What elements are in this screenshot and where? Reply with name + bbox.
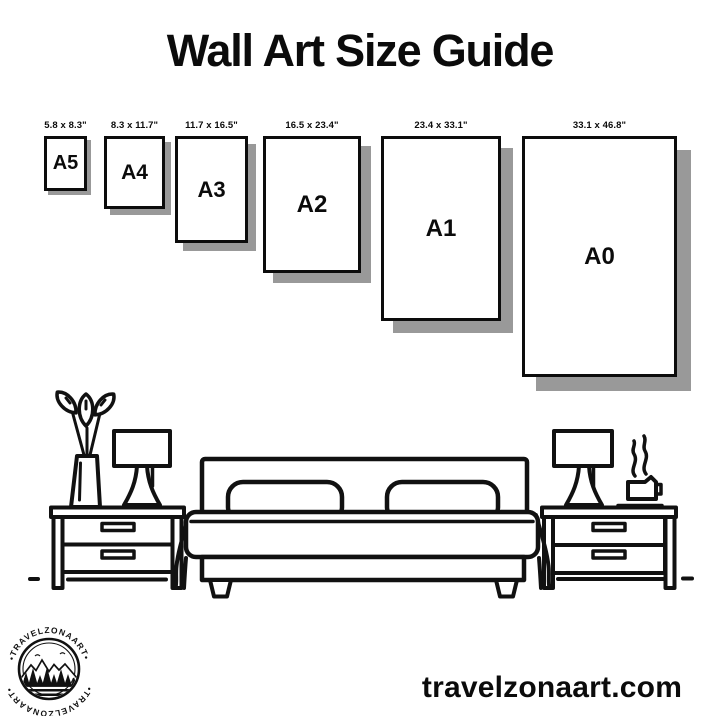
size-item-a4: 8.3 x 11.7" A4 [104,136,165,209]
size-item-a5: 5.8 x 8.3" A5 [44,136,87,191]
size-code: A4 [121,161,148,185]
paper-a3: A3 [175,136,248,243]
vase-plant-icon [53,388,118,507]
table-lamp-icon [114,431,170,505]
size-dimensions-label: 16.5 x 23.4" [285,120,338,131]
poster: Wall Art Size Guide 5.8 x 8.3" A5 8.3 x … [0,0,720,720]
nightstand-icon [51,508,184,589]
size-dimensions-label: 5.8 x 8.3" [44,120,86,131]
table-lamp-icon [554,431,612,505]
size-code: A2 [297,191,328,219]
size-item-a2: 16.5 x 23.4" A2 [263,136,361,273]
paper-a5: A5 [44,136,87,191]
size-dimensions-label: 33.1 x 46.8" [573,120,626,131]
size-code: A0 [584,243,615,271]
size-item-a3: 11.7 x 16.5" A3 [175,136,248,243]
bed-icon [176,459,550,597]
size-code: A3 [197,177,225,203]
size-dimensions-label: 23.4 x 33.1" [414,120,467,131]
website-url: travelzonaart.com [402,671,702,705]
nightstand-icon [542,508,676,589]
size-item-a0: 33.1 x 46.8" A0 [522,136,677,377]
paper-a0: A0 [522,136,677,377]
bedroom-illustration [25,378,705,600]
size-code: A5 [53,152,79,175]
page-title: Wall Art Size Guide [0,28,720,73]
coffee-cup-icon [618,436,662,506]
paper-a1: A1 [381,136,501,321]
paper-a2: A2 [263,136,361,273]
size-item-a1: 23.4 x 33.1" A1 [381,136,501,321]
size-code: A1 [426,215,457,243]
size-dimensions-label: 11.7 x 16.5" [185,120,238,131]
brand-logo-badge: •TRAVELZONAART• •TRAVELZONAART• [2,622,96,716]
size-dimensions-label: 8.3 x 11.7" [111,120,158,131]
paper-a4: A4 [104,136,165,209]
